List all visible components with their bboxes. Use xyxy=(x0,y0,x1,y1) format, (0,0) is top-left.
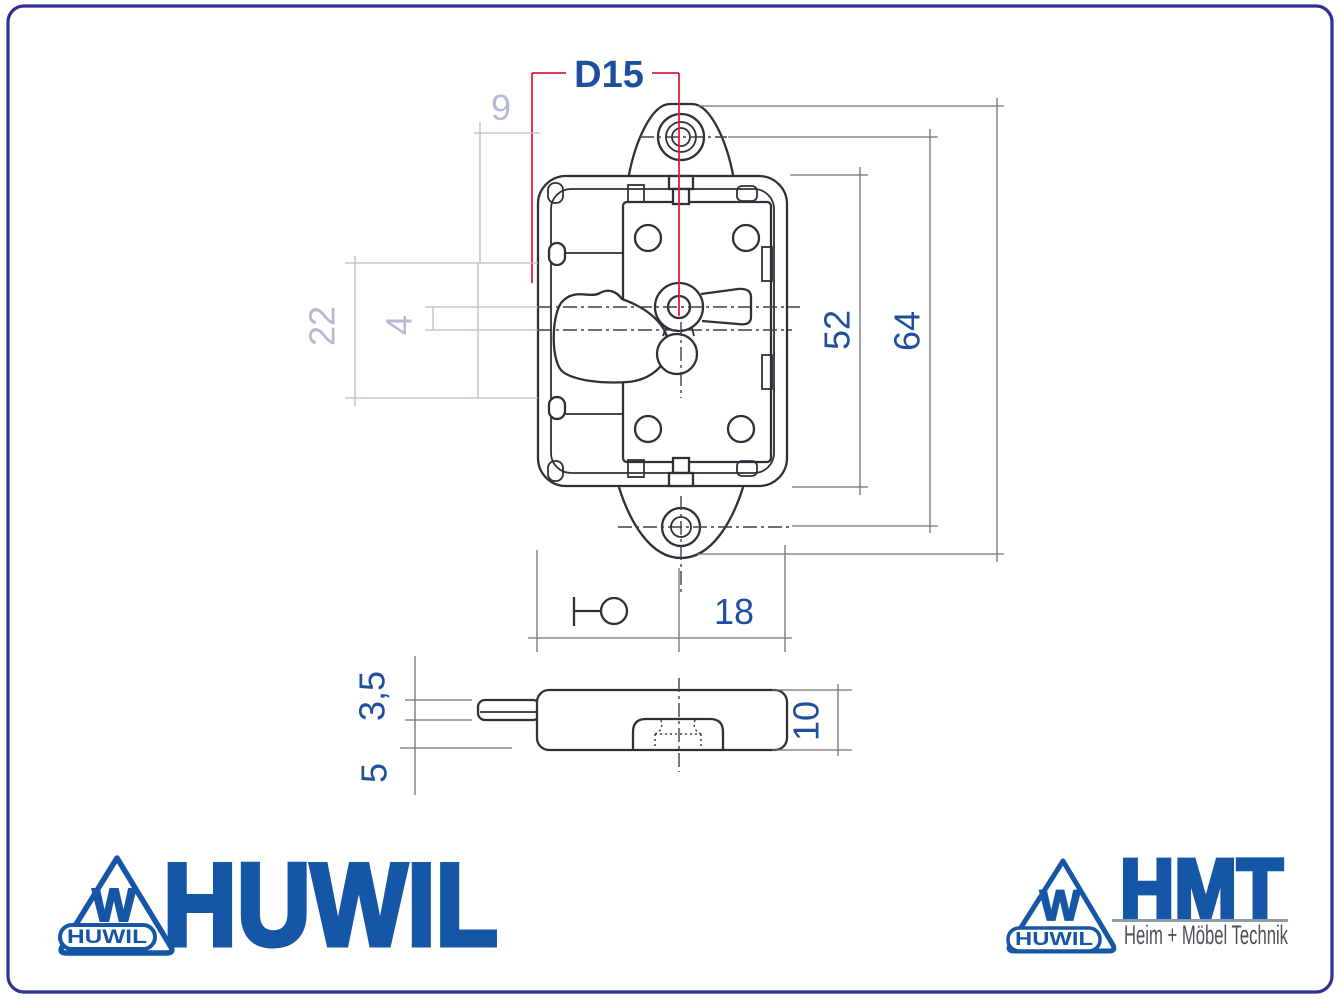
keyhole-lower xyxy=(657,334,697,374)
bottom-screw-post xyxy=(669,473,693,486)
dimension-label-d15: D15 xyxy=(574,54,644,96)
latch-guide-pin xyxy=(549,243,565,265)
dimension-label-10: 10 xyxy=(786,701,827,741)
screw-hole xyxy=(635,416,661,442)
top-screw-post xyxy=(669,176,693,189)
screw-hole xyxy=(733,225,759,251)
dimension-label-52: 52 xyxy=(817,310,858,350)
huwil-triangle-banner-text: HUWIL xyxy=(67,927,147,948)
hmt-tagline: Heim + Möbel Technik xyxy=(1124,920,1288,950)
dimension-label-4: 4 xyxy=(379,315,420,335)
top-screw-post xyxy=(673,189,689,204)
dimension-label-9: 9 xyxy=(491,87,511,128)
dimension-label-64: 64 xyxy=(887,311,928,351)
screw-hole xyxy=(635,225,661,251)
hmt-triangle-banner-text: HUWIL xyxy=(1015,929,1093,949)
bottom-screw-post xyxy=(673,458,689,473)
huwil-wordmark: HUWIL xyxy=(163,839,498,970)
hmt-triangle-letter: W xyxy=(1040,882,1081,930)
latch-bolt-side xyxy=(478,700,540,720)
latch-guide-pin xyxy=(549,397,565,419)
dimension-label-22: 22 xyxy=(302,306,343,346)
dimension-label-18: 18 xyxy=(714,591,754,632)
dimension-label-5: 5 xyxy=(354,763,395,783)
screw-hole xyxy=(728,416,754,442)
dimension-label-3-5: 3,5 xyxy=(352,671,393,721)
lock-technical-drawing: D15 9 22 4 52 64 18 3,5 5 10 W HUWIL HUW… xyxy=(0,0,1340,999)
